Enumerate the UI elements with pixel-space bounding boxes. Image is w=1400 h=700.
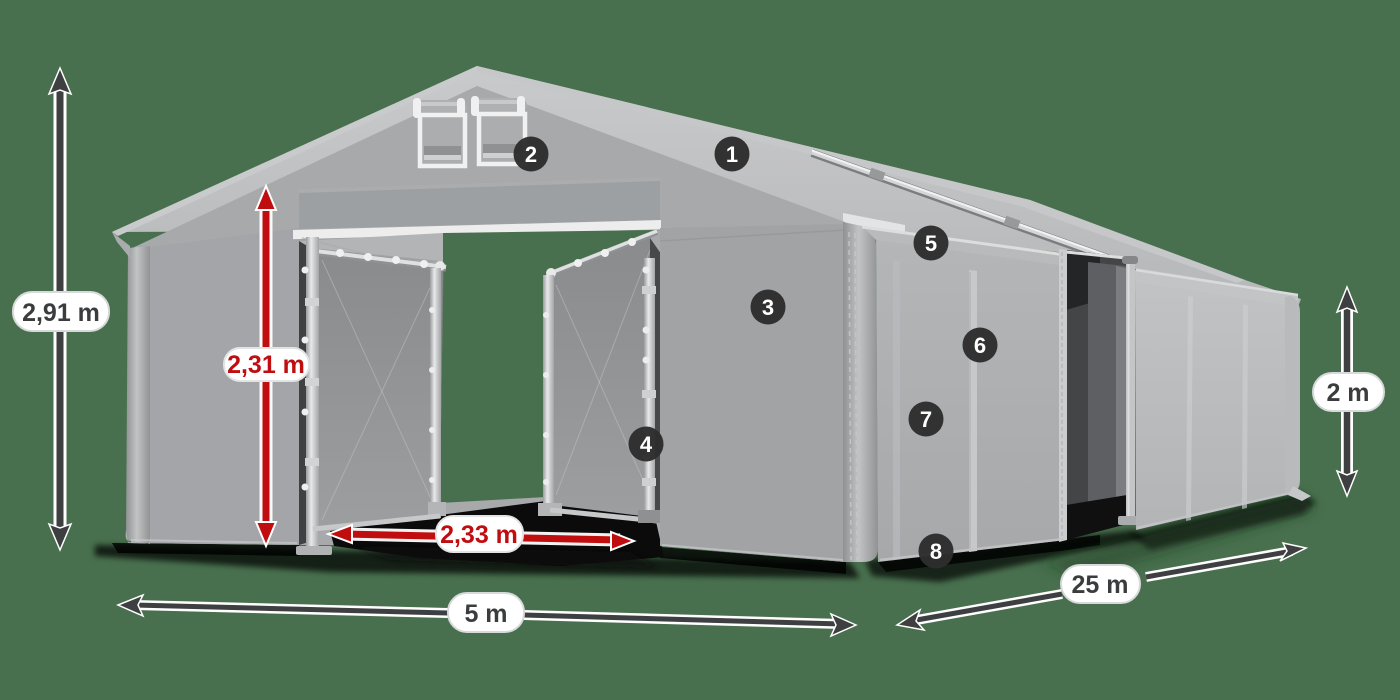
svg-text:2,91 m: 2,91 m: [22, 299, 100, 327]
svg-text:2: 2: [525, 142, 537, 167]
svg-text:2,33 m: 2,33 m: [440, 521, 518, 549]
svg-text:7: 7: [920, 407, 932, 432]
svg-text:8: 8: [930, 539, 942, 564]
svg-text:6: 6: [974, 333, 986, 358]
svg-text:5 m: 5 m: [464, 600, 507, 628]
svg-text:4: 4: [640, 432, 653, 457]
svg-text:25 m: 25 m: [1072, 571, 1129, 599]
svg-text:2 m: 2 m: [1326, 379, 1369, 407]
svg-text:2,31 m: 2,31 m: [227, 351, 305, 379]
svg-text:5: 5: [925, 231, 937, 256]
svg-text:1: 1: [726, 142, 738, 167]
svg-text:3: 3: [762, 295, 774, 320]
